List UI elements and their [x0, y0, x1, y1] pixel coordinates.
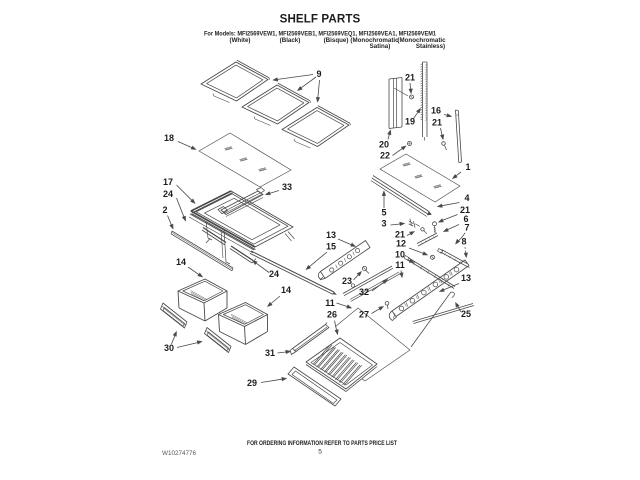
svg-text:5: 5 — [318, 449, 322, 456]
svg-text:20: 20 — [379, 140, 389, 150]
svg-text:33: 33 — [282, 182, 292, 192]
svg-text:Stainless): Stainless) — [416, 43, 445, 50]
svg-text:25: 25 — [461, 309, 471, 319]
svg-text:8: 8 — [461, 237, 466, 247]
svg-text:24: 24 — [269, 269, 279, 279]
svg-text:12: 12 — [396, 239, 406, 249]
svg-text:3: 3 — [381, 219, 386, 229]
svg-text:32: 32 — [359, 287, 369, 297]
svg-text:21: 21 — [432, 118, 442, 128]
svg-text:4: 4 — [464, 193, 469, 203]
svg-text:23: 23 — [342, 276, 352, 286]
svg-text:11: 11 — [395, 260, 405, 270]
svg-text:15: 15 — [326, 242, 336, 252]
svg-text:29: 29 — [247, 378, 257, 388]
svg-text:24: 24 — [163, 189, 173, 199]
svg-text:1: 1 — [465, 162, 470, 172]
svg-text:16: 16 — [431, 106, 441, 116]
svg-text:22: 22 — [380, 151, 390, 161]
svg-text:(Bisque): (Bisque) — [324, 37, 349, 44]
svg-text:14: 14 — [176, 257, 186, 267]
svg-text:5: 5 — [381, 208, 386, 218]
svg-text:SHELF PARTS: SHELF PARTS — [280, 13, 361, 26]
svg-text:7: 7 — [464, 223, 469, 233]
svg-text:Satina): Satina) — [370, 43, 391, 50]
svg-text:13: 13 — [326, 230, 336, 240]
svg-text:26: 26 — [327, 310, 337, 320]
svg-text:2: 2 — [162, 205, 167, 215]
svg-text:W10274776: W10274776 — [162, 450, 196, 457]
svg-text:17: 17 — [163, 177, 173, 187]
svg-text:31: 31 — [265, 348, 275, 358]
svg-text:14: 14 — [281, 285, 291, 295]
svg-text:30: 30 — [164, 343, 174, 353]
svg-text:18: 18 — [164, 133, 174, 143]
svg-text:(Black): (Black) — [280, 37, 301, 44]
svg-text:FOR ORDERING INFORMATION REFER: FOR ORDERING INFORMATION REFER TO PARTS … — [247, 440, 397, 447]
svg-text:21: 21 — [405, 73, 415, 83]
svg-text:10: 10 — [395, 250, 405, 260]
svg-text:27: 27 — [359, 310, 369, 320]
svg-text:11: 11 — [325, 298, 335, 308]
svg-text:13: 13 — [461, 273, 471, 283]
svg-text:9: 9 — [316, 69, 321, 79]
svg-text:(White): (White) — [230, 37, 251, 44]
